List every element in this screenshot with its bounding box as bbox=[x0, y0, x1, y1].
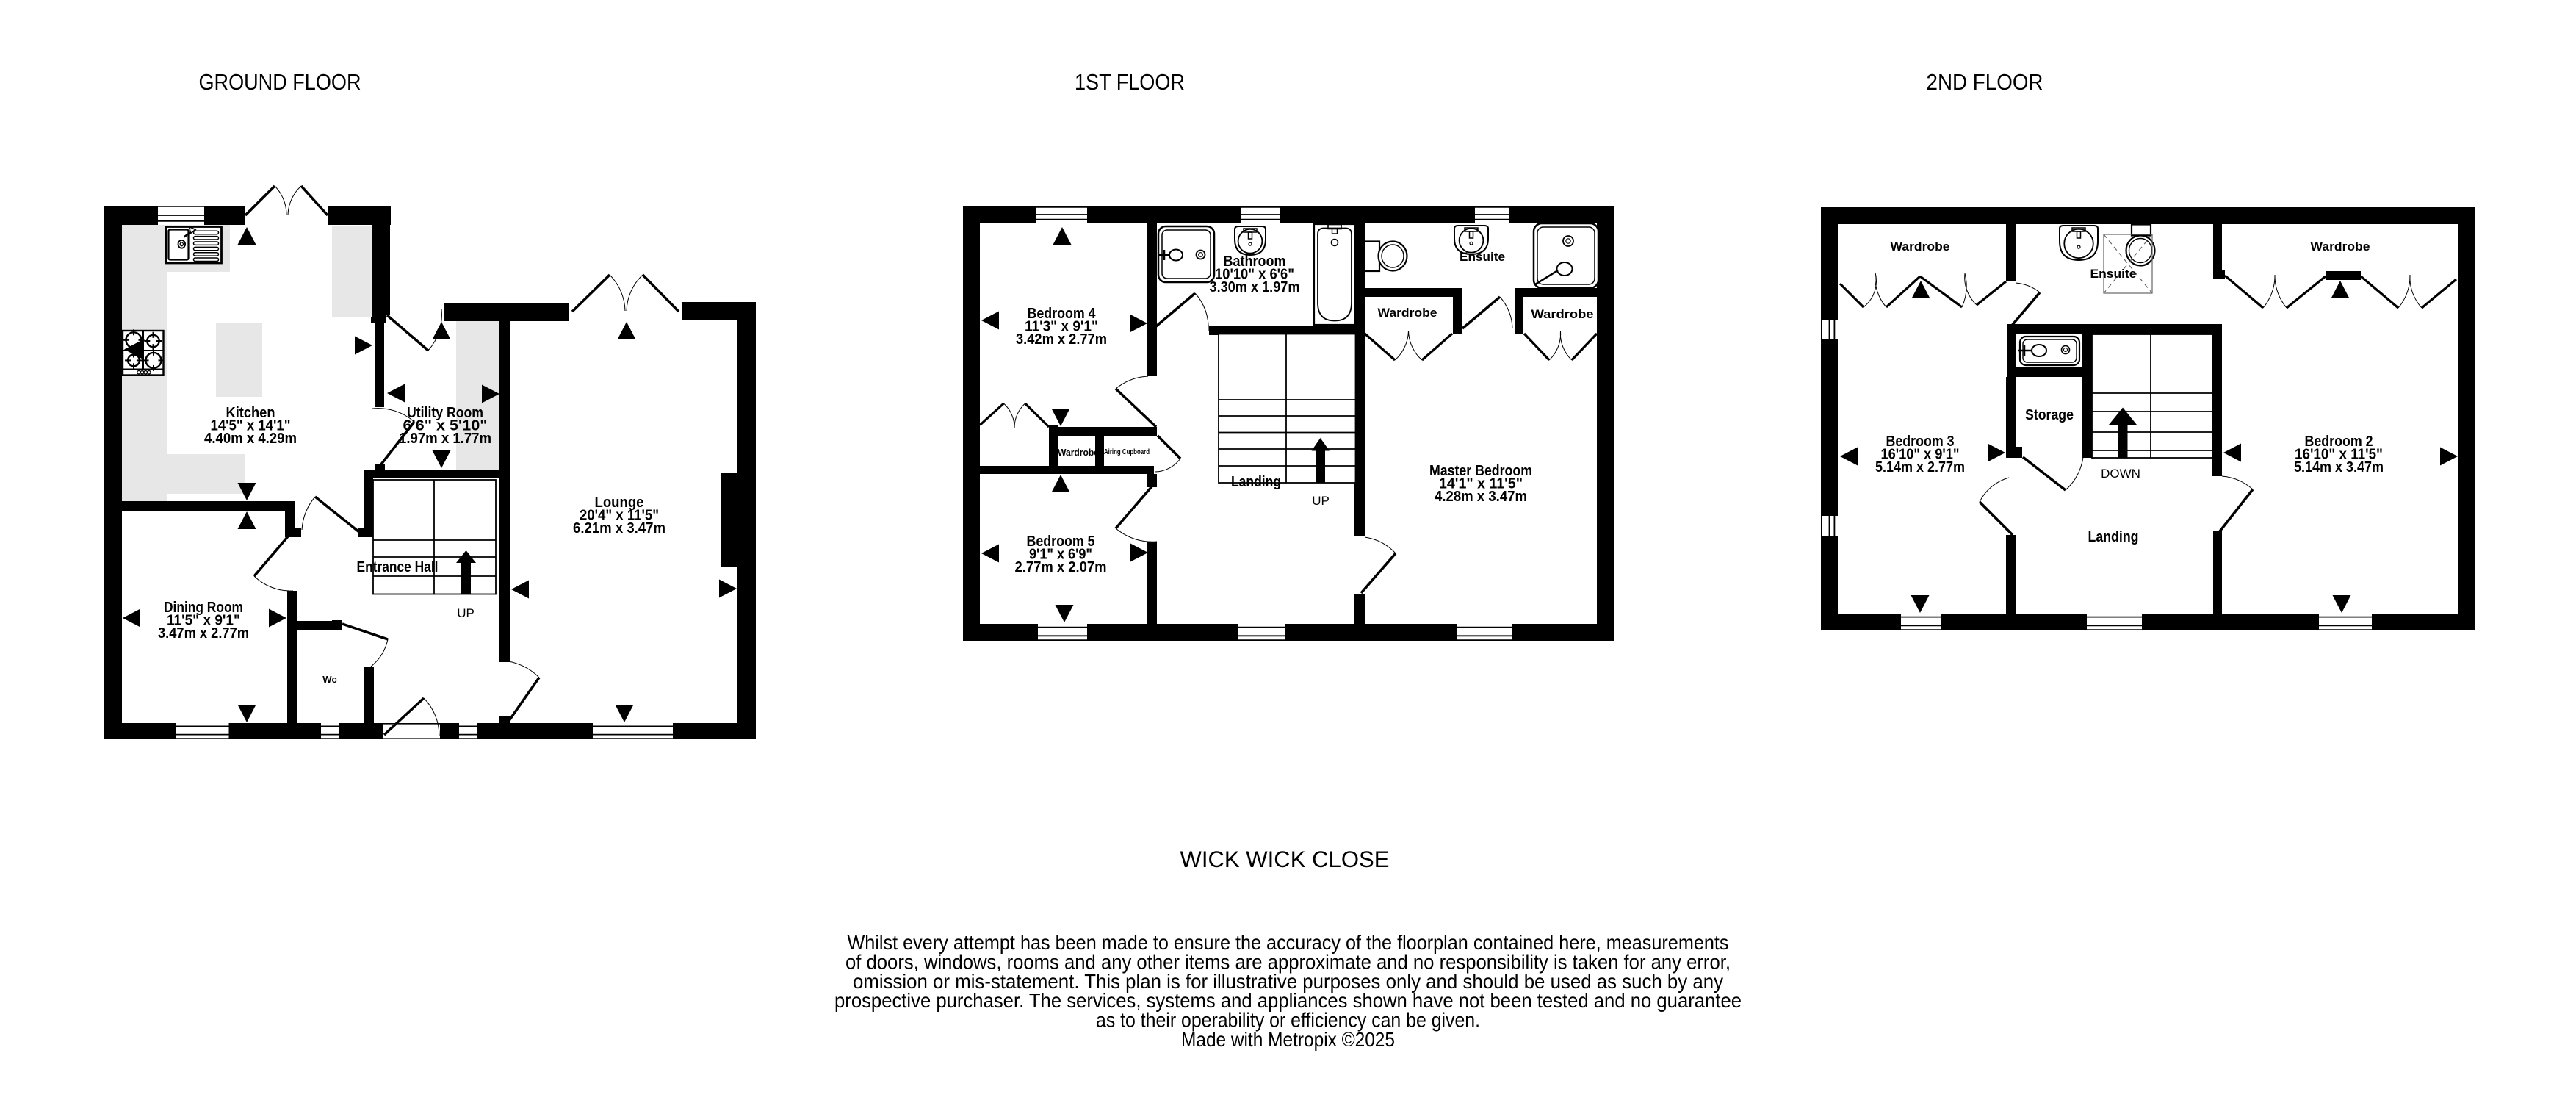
svg-text:UP: UP bbox=[457, 606, 475, 620]
svg-text:Wardrobe: Wardrobe bbox=[1058, 447, 1099, 458]
svg-text:1ST FLOOR: 1ST FLOOR bbox=[1075, 69, 1185, 95]
svg-text:Wc: Wc bbox=[322, 674, 337, 685]
svg-text:WICK WICK CLOSE: WICK WICK CLOSE bbox=[1180, 846, 1390, 872]
svg-text:3.30m x 1.97m: 3.30m x 1.97m bbox=[1210, 279, 1300, 295]
svg-text:Airing Cupboard: Airing Cupboard bbox=[1104, 448, 1150, 456]
svg-text:Wardrobe: Wardrobe bbox=[1891, 240, 1950, 254]
svg-text:Ensuite: Ensuite bbox=[2090, 267, 2137, 281]
svg-text:4.40m x 4.29m: 4.40m x 4.29m bbox=[204, 431, 297, 447]
svg-text:3.42m x 2.77m: 3.42m x 2.77m bbox=[1016, 331, 1107, 348]
svg-text:Ensuite: Ensuite bbox=[1460, 250, 1505, 264]
svg-text:Made with Metropix ©2025: Made with Metropix ©2025 bbox=[1181, 1028, 1395, 1051]
svg-text:6.21m x 3.47m: 6.21m x 3.47m bbox=[573, 520, 665, 536]
svg-text:DOWN: DOWN bbox=[2101, 467, 2140, 481]
svg-text:2.77m x 2.07m: 2.77m x 2.07m bbox=[1015, 559, 1107, 575]
svg-text:Wardrobe: Wardrobe bbox=[1531, 307, 1594, 321]
svg-text:Entrance Hall: Entrance Hall bbox=[357, 559, 439, 575]
svg-text:1.97m x 1.77m: 1.97m x 1.77m bbox=[399, 431, 491, 447]
svg-text:4.28m x 3.47m: 4.28m x 3.47m bbox=[1435, 489, 1527, 505]
svg-text:2ND FLOOR: 2ND FLOOR bbox=[1927, 69, 2043, 95]
svg-text:Wardrobe: Wardrobe bbox=[2311, 240, 2370, 254]
svg-text:Storage: Storage bbox=[2025, 407, 2074, 423]
svg-text:Landing: Landing bbox=[1231, 474, 1281, 490]
svg-text:3.47m x 2.77m: 3.47m x 2.77m bbox=[158, 625, 249, 642]
svg-text:GROUND FLOOR: GROUND FLOOR bbox=[199, 69, 361, 95]
svg-text:5.14m x 3.47m: 5.14m x 3.47m bbox=[2294, 459, 2384, 475]
svg-text:5.14m x 2.77m: 5.14m x 2.77m bbox=[1875, 459, 1965, 475]
svg-text:Wardrobe: Wardrobe bbox=[1378, 306, 1437, 320]
svg-text:UP: UP bbox=[1312, 494, 1330, 508]
svg-text:Landing: Landing bbox=[2088, 529, 2139, 545]
